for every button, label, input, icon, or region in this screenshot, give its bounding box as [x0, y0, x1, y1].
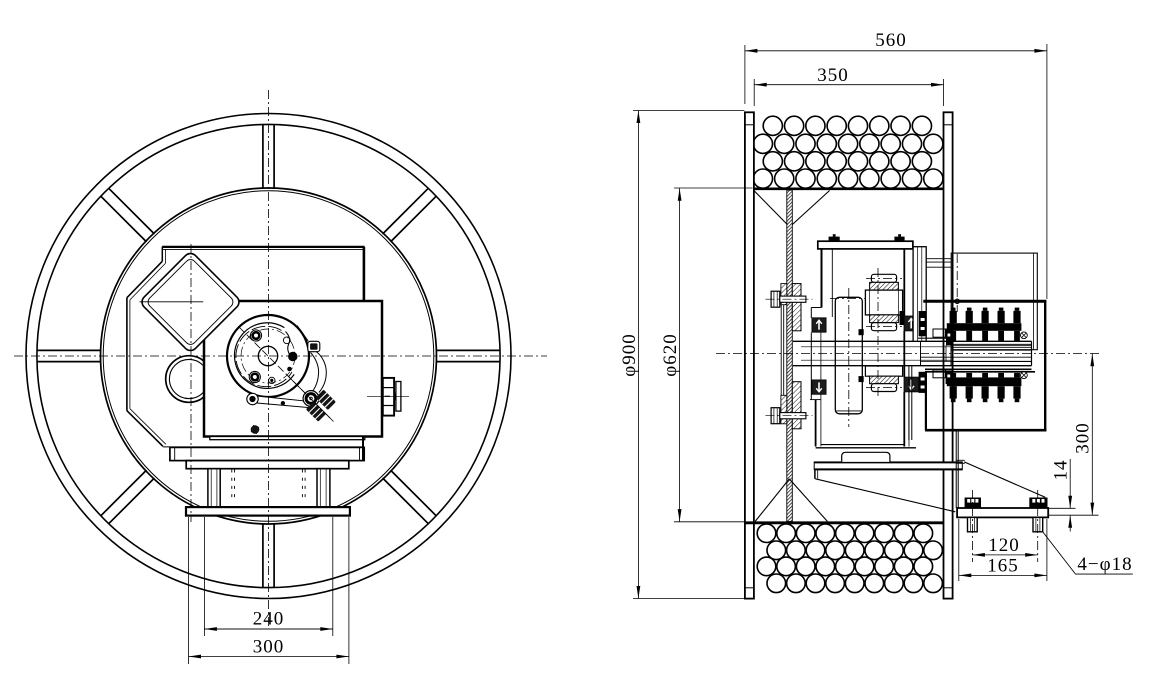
svg-text:14: 14 — [1051, 460, 1072, 481]
svg-text:4−φ18: 4−φ18 — [1077, 554, 1132, 575]
svg-text:165: 165 — [987, 556, 1019, 577]
svg-text:φ900: φ900 — [619, 333, 640, 376]
svg-text:240: 240 — [253, 609, 285, 630]
svg-text:560: 560 — [875, 30, 907, 51]
svg-text:350: 350 — [817, 65, 849, 86]
svg-text:120: 120 — [988, 535, 1020, 556]
svg-text:φ620: φ620 — [660, 333, 681, 376]
svg-text:300: 300 — [1073, 422, 1094, 454]
svg-text:300: 300 — [253, 637, 285, 658]
